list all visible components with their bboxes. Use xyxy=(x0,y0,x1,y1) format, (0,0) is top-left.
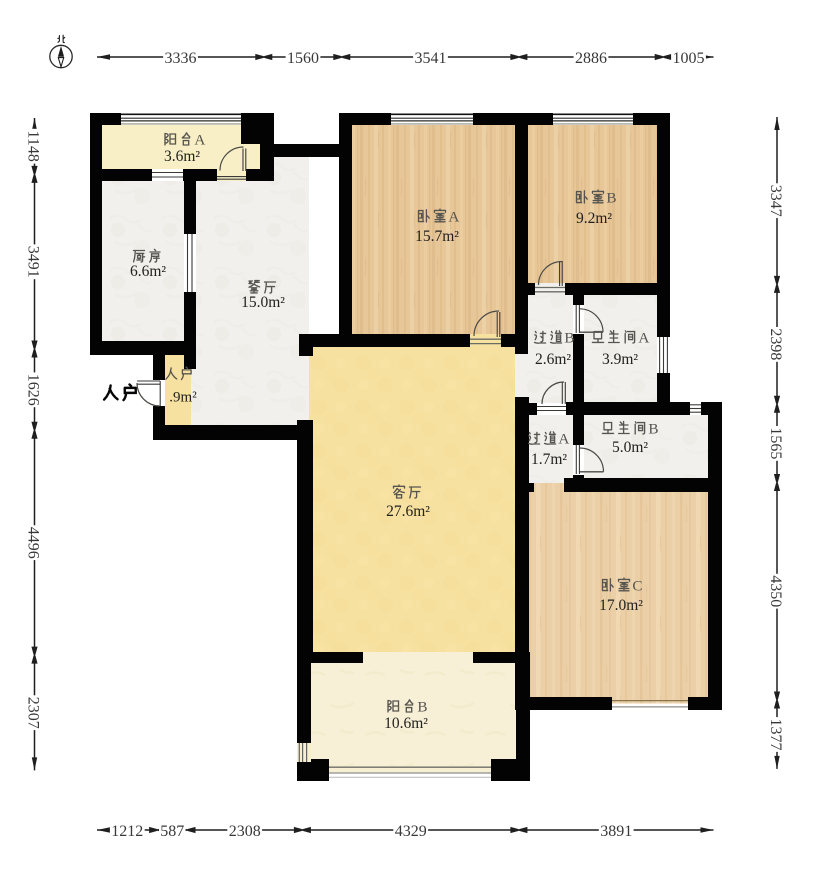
svg-text:3491: 3491 xyxy=(25,246,42,278)
svg-text:B: B xyxy=(606,189,616,206)
svg-text:1.7m²: 1.7m² xyxy=(531,451,567,468)
svg-text:3891: 3891 xyxy=(600,823,632,840)
svg-text:2398: 2398 xyxy=(767,328,784,360)
svg-text:1626: 1626 xyxy=(25,374,42,406)
svg-text:15.0m²: 15.0m² xyxy=(241,294,285,311)
svg-text:B: B xyxy=(564,329,574,346)
svg-text:A: A xyxy=(558,430,569,447)
svg-text:.9m²: .9m² xyxy=(169,390,197,406)
svg-text:4496: 4496 xyxy=(25,527,42,559)
svg-text:A: A xyxy=(448,208,459,225)
svg-text:5.0m²: 5.0m² xyxy=(612,439,648,456)
svg-text:6.6m²: 6.6m² xyxy=(130,263,166,280)
svg-text:4350: 4350 xyxy=(767,575,784,607)
svg-text:3347: 3347 xyxy=(767,185,784,217)
svg-text:1212: 1212 xyxy=(111,823,143,840)
svg-text:C: C xyxy=(632,577,642,594)
svg-text:1148: 1148 xyxy=(25,130,42,161)
svg-text:B: B xyxy=(417,698,427,715)
svg-text:1565: 1565 xyxy=(767,427,784,459)
svg-text:1005: 1005 xyxy=(673,50,705,67)
svg-text:2308: 2308 xyxy=(229,823,261,840)
svg-text:15.7m²: 15.7m² xyxy=(415,228,459,245)
svg-text:2.6m²: 2.6m² xyxy=(535,351,571,368)
svg-text:17.0m²: 17.0m² xyxy=(599,597,643,614)
svg-text:3336: 3336 xyxy=(165,50,197,67)
svg-text:3.9m²: 3.9m² xyxy=(602,351,638,368)
svg-text:27.6m²: 27.6m² xyxy=(386,503,430,520)
svg-text:A: A xyxy=(194,131,205,148)
svg-text:9.2m²: 9.2m² xyxy=(576,210,612,227)
svg-text:4329: 4329 xyxy=(395,823,427,840)
svg-text:2307: 2307 xyxy=(25,697,42,729)
svg-text:3.6m²: 3.6m² xyxy=(164,148,200,165)
svg-text:A: A xyxy=(638,329,649,346)
svg-text:3541: 3541 xyxy=(415,50,447,67)
svg-text:1377: 1377 xyxy=(767,719,784,751)
svg-text:2886: 2886 xyxy=(575,50,607,67)
svg-text:B: B xyxy=(648,420,658,437)
svg-text:587: 587 xyxy=(160,823,184,840)
svg-text:10.6m²: 10.6m² xyxy=(384,715,428,732)
svg-text:1560: 1560 xyxy=(287,50,319,67)
